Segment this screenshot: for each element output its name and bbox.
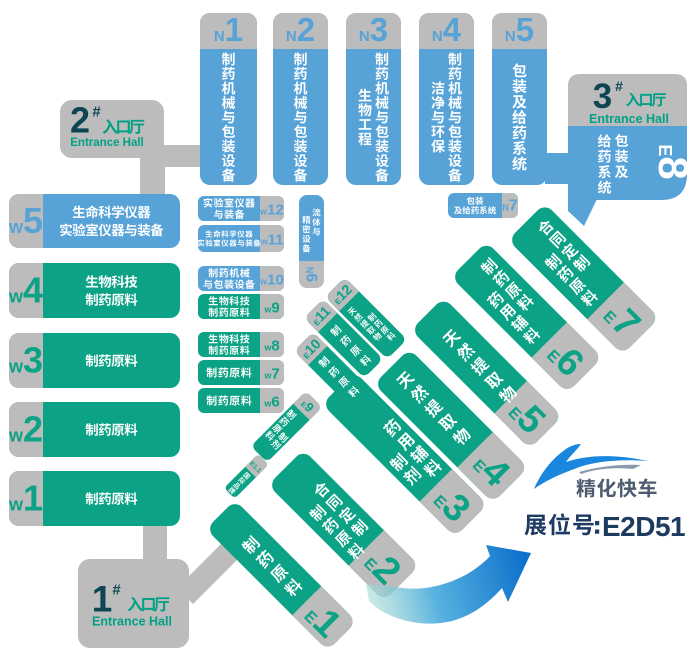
svg-text:1: 1: [92, 578, 113, 619]
svg-text:#: #: [615, 78, 623, 94]
svg-text:E2D51: E2D51: [602, 511, 685, 542]
svg-text:Entrance Hall: Entrance Hall: [70, 137, 144, 149]
svg-text:#: #: [92, 104, 101, 121]
svg-text:E8: E8: [650, 144, 697, 179]
svg-text:2: 2: [70, 100, 90, 141]
svg-text:Entrance Hall: Entrance Hall: [92, 615, 172, 629]
svg-text:#: #: [112, 582, 121, 599]
svg-text:3: 3: [593, 77, 612, 116]
svg-text:Entrance Hall: Entrance Hall: [589, 112, 669, 126]
